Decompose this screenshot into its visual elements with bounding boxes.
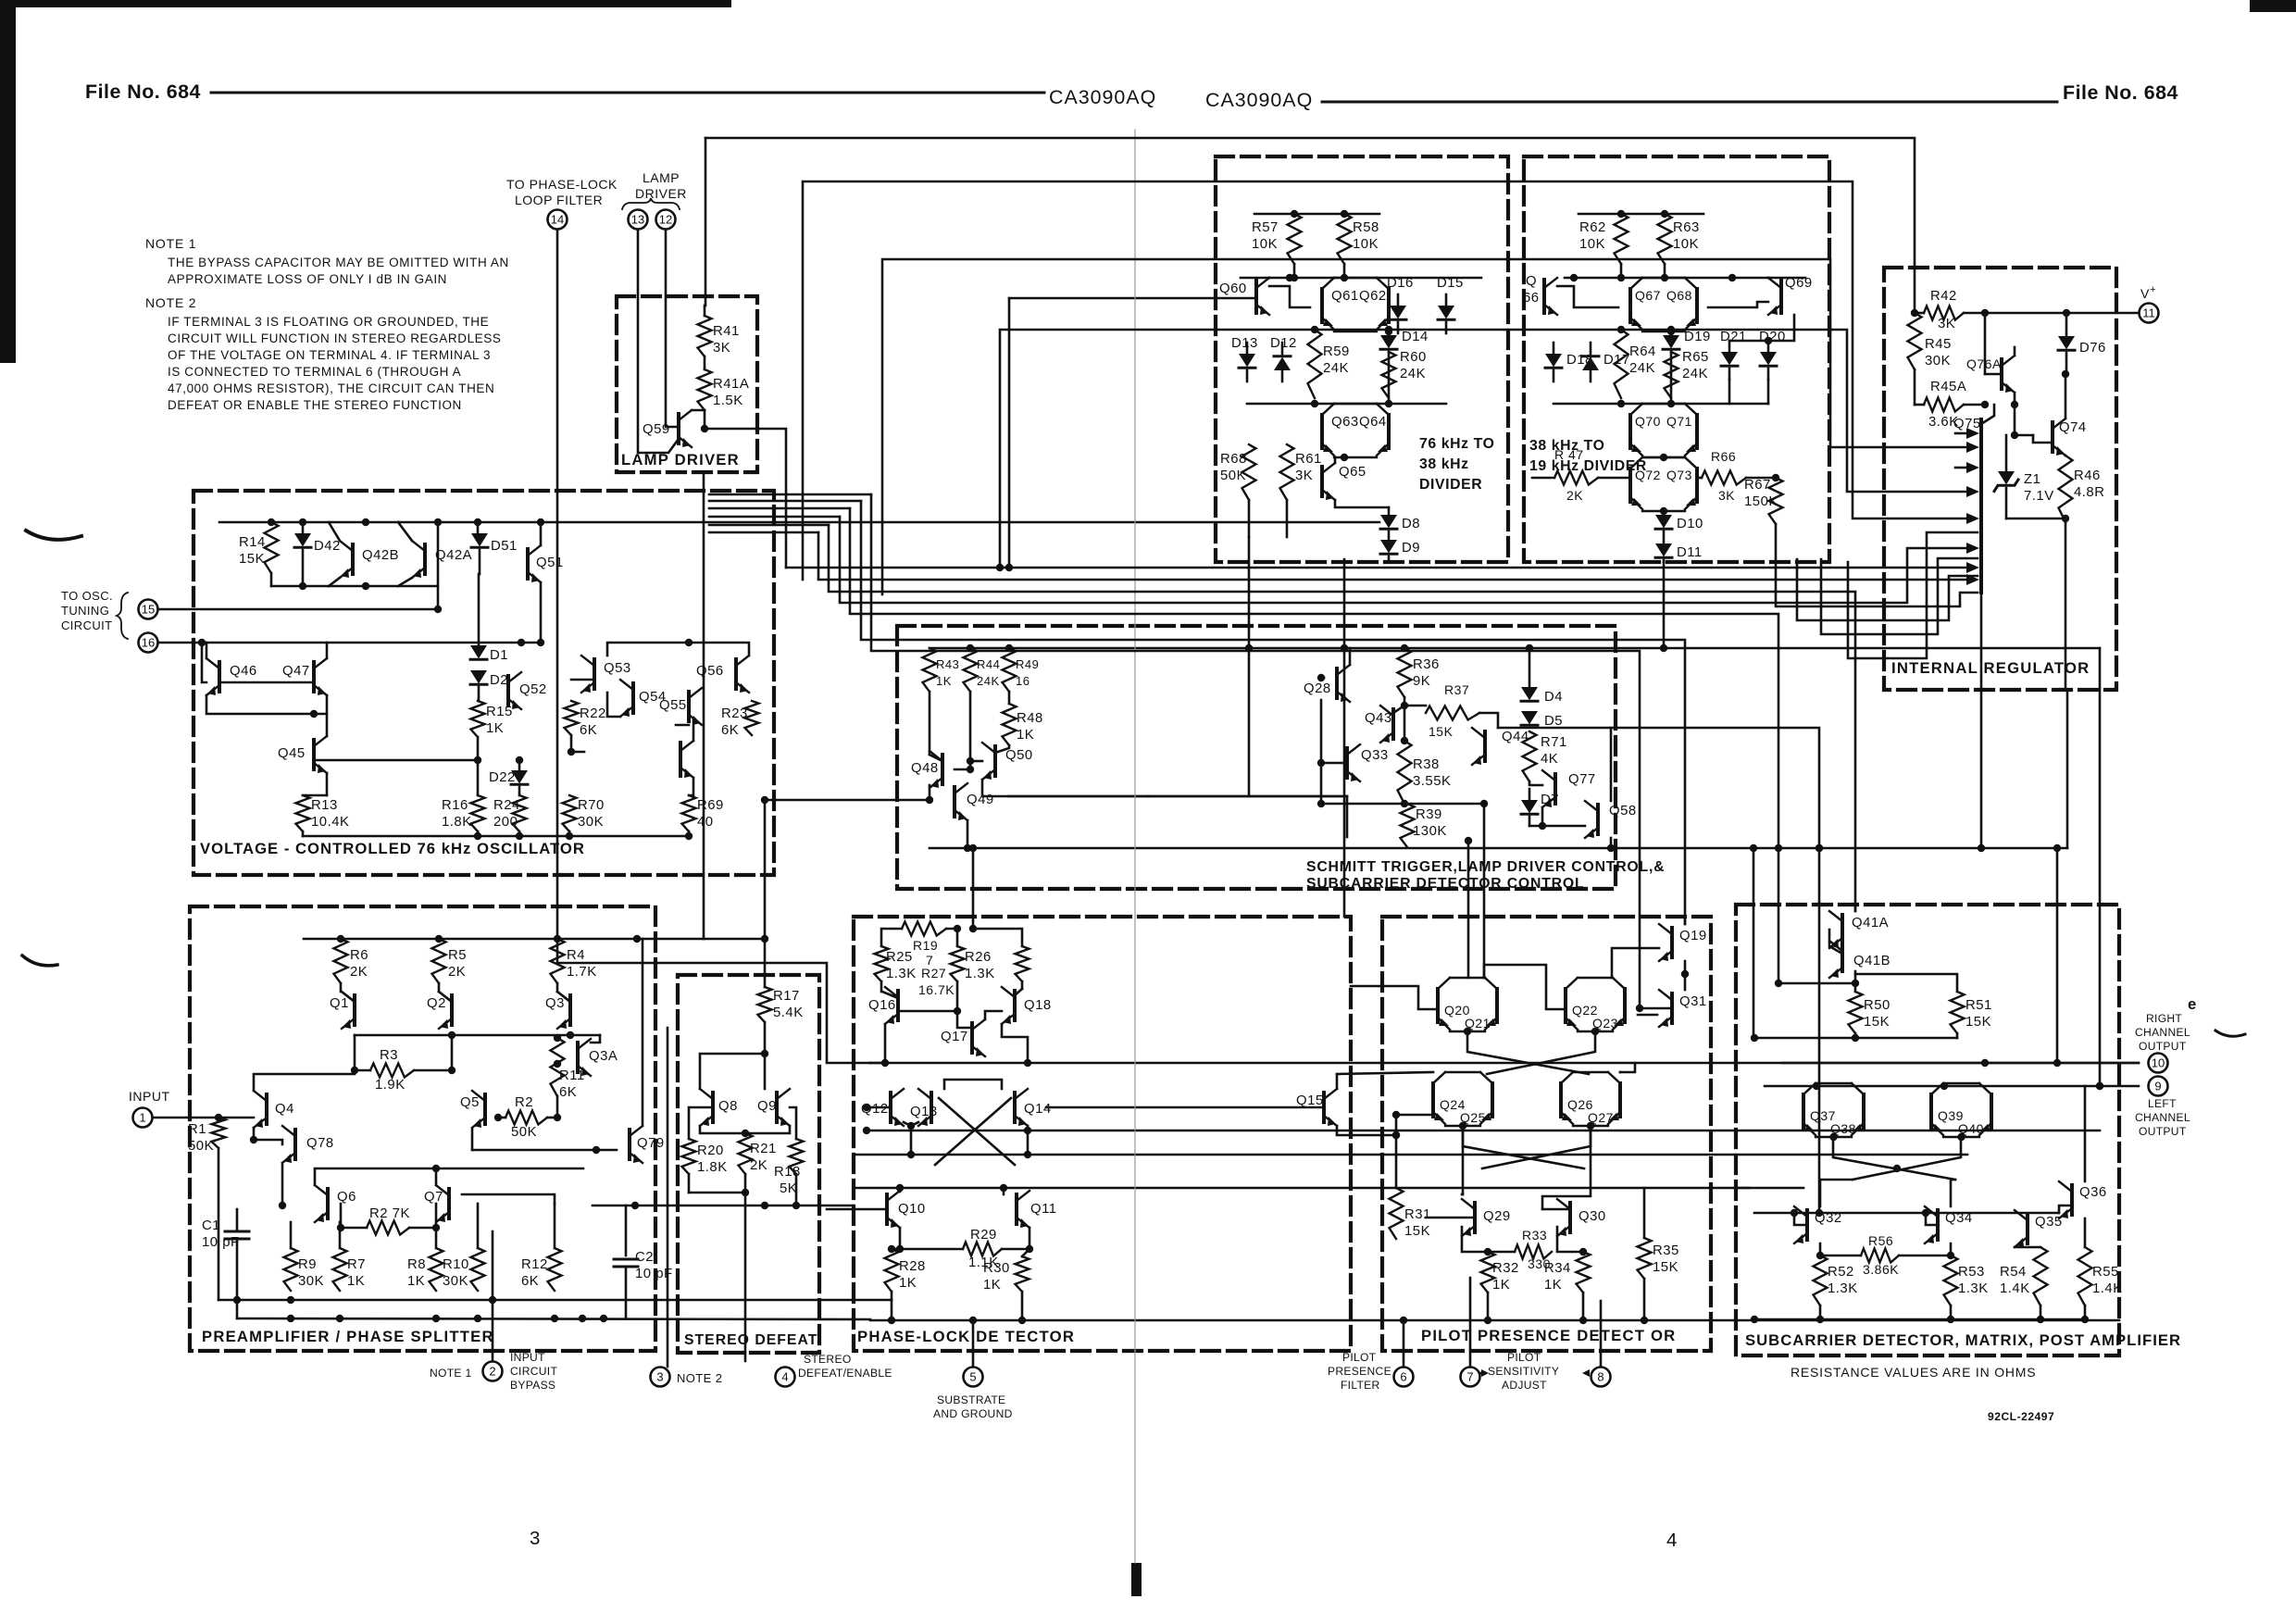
svg-text:Q29: Q29 xyxy=(1483,1209,1511,1224)
svg-text:File No. 684: File No. 684 xyxy=(85,81,201,103)
svg-text:30K: 30K xyxy=(578,815,604,830)
svg-text:DRIVER: DRIVER xyxy=(635,186,687,201)
svg-text:R30: R30 xyxy=(983,1261,1010,1276)
svg-text:4.8R: 4.8R xyxy=(2074,485,2104,500)
svg-text:Q60: Q60 xyxy=(1219,281,1247,296)
svg-text:D20: D20 xyxy=(1759,330,1786,344)
svg-text:R22: R22 xyxy=(580,706,606,721)
svg-text:15: 15 xyxy=(142,603,155,617)
svg-text:OUTPUT: OUTPUT xyxy=(2139,1125,2187,1138)
svg-text:Q69: Q69 xyxy=(1785,276,1813,291)
svg-text:SUBSTRATE: SUBSTRATE xyxy=(937,1393,1005,1406)
svg-text:50K: 50K xyxy=(511,1125,537,1140)
svg-text:D19: D19 xyxy=(1684,330,1711,344)
svg-text:5: 5 xyxy=(969,1370,976,1384)
svg-text:4K: 4K xyxy=(1541,752,1558,767)
svg-text:3.86K: 3.86K xyxy=(1863,1262,1899,1277)
svg-text:R1: R1 xyxy=(188,1122,206,1137)
svg-text:Q68: Q68 xyxy=(1666,288,1692,303)
svg-text:Q61: Q61 xyxy=(1331,289,1359,304)
svg-text:INPUT: INPUT xyxy=(510,1351,545,1364)
svg-text:50K: 50K xyxy=(1220,468,1246,483)
svg-text:R55: R55 xyxy=(2092,1265,2119,1280)
svg-text:VOLTAGE - CONTROLLED 76 kHz: VOLTAGE - CONTROLLED 76 kHz OSCILLATOR xyxy=(200,840,585,857)
svg-text:Q40: Q40 xyxy=(1958,1121,1984,1136)
svg-text:D15: D15 xyxy=(1437,276,1464,291)
svg-text:R41A: R41A xyxy=(713,377,749,392)
svg-text:1K: 1K xyxy=(899,1276,917,1291)
svg-text:R43: R43 xyxy=(936,657,959,671)
svg-text:FILTER: FILTER xyxy=(1341,1379,1380,1392)
svg-text:1.4K: 1.4K xyxy=(2092,1281,2123,1296)
svg-text:ADJUST: ADJUST xyxy=(1502,1379,1547,1392)
svg-text:Q15: Q15 xyxy=(1296,1093,1324,1108)
svg-text:6K: 6K xyxy=(721,723,739,738)
svg-text:Q13: Q13 xyxy=(910,1105,938,1119)
svg-text:OF THE VOLTAGE ON TERMINAL 4.: OF THE VOLTAGE ON TERMINAL 4. IF TERMINA… xyxy=(168,348,491,362)
svg-text:R32: R32 xyxy=(1492,1261,1519,1276)
svg-text:R49: R49 xyxy=(1016,657,1039,671)
svg-text:DIVIDER: DIVIDER xyxy=(1419,477,1482,493)
svg-text:R8: R8 xyxy=(407,1257,426,1272)
svg-text:Q30: Q30 xyxy=(1578,1209,1606,1224)
svg-text:Q77: Q77 xyxy=(1568,772,1596,787)
svg-text:LOOP FILTER: LOOP FILTER xyxy=(515,193,603,207)
svg-text:15K: 15K xyxy=(1965,1015,1991,1030)
svg-text:R10: R10 xyxy=(443,1257,469,1272)
svg-text:R37: R37 xyxy=(1444,682,1469,697)
svg-text:R52: R52 xyxy=(1828,1265,1854,1280)
svg-text:R42: R42 xyxy=(1930,289,1957,304)
svg-text:THE BYPASS CAPACITOR MAY BE OM: THE BYPASS CAPACITOR MAY BE OMITTED WITH… xyxy=(168,256,509,269)
svg-text:2K: 2K xyxy=(448,965,466,980)
svg-text:R11: R11 xyxy=(559,1068,585,1083)
svg-text:R50: R50 xyxy=(1864,998,1890,1013)
svg-text:File No. 684: File No. 684 xyxy=(2063,81,2178,104)
svg-text:R56: R56 xyxy=(1868,1233,1893,1248)
svg-text:D11: D11 xyxy=(1677,545,1703,560)
svg-text:V: V xyxy=(2140,286,2150,301)
svg-text:R65: R65 xyxy=(1682,350,1709,365)
svg-text:D51: D51 xyxy=(491,539,518,554)
svg-text:7.1V: 7.1V xyxy=(2024,489,2054,504)
svg-text:R48: R48 xyxy=(1017,711,1043,726)
svg-text:R7: R7 xyxy=(347,1257,366,1272)
svg-text:D8: D8 xyxy=(1402,517,1420,531)
svg-text:1.4K: 1.4K xyxy=(2000,1281,2030,1296)
svg-text:RIGHT: RIGHT xyxy=(2146,1012,2182,1025)
svg-text:SENSITIVITY: SENSITIVITY xyxy=(1488,1365,1559,1378)
svg-text:R14: R14 xyxy=(239,535,266,550)
svg-text:1.3K: 1.3K xyxy=(1828,1281,1858,1296)
svg-text:Q2: Q2 xyxy=(427,996,446,1011)
svg-text:10K: 10K xyxy=(1579,237,1605,252)
svg-text:R29: R29 xyxy=(970,1228,997,1243)
svg-text:CHANNEL: CHANNEL xyxy=(2135,1026,2190,1039)
svg-text:Q42B: Q42B xyxy=(362,548,399,563)
svg-text:Q42A: Q42A xyxy=(435,548,472,563)
svg-text:APPROXIMATE LOSS OF ONLY I dB: APPROXIMATE LOSS OF ONLY I dB IN GAIN xyxy=(168,272,447,286)
svg-text:NOTE 2: NOTE 2 xyxy=(677,1371,722,1385)
svg-text:Q43: Q43 xyxy=(1365,711,1392,726)
svg-text:Q51: Q51 xyxy=(536,556,564,570)
svg-text:R28: R28 xyxy=(899,1259,926,1274)
svg-text:1K: 1K xyxy=(486,721,504,736)
svg-text:Q: Q xyxy=(1526,274,1537,289)
svg-text:D22: D22 xyxy=(489,770,516,785)
svg-text:Q78: Q78 xyxy=(306,1136,334,1151)
svg-text:D7: D7 xyxy=(1541,793,1559,807)
svg-text:TO OSC.: TO OSC. xyxy=(61,589,113,603)
svg-text:Q46: Q46 xyxy=(230,664,257,679)
svg-text:D76: D76 xyxy=(2079,341,2106,356)
svg-text:6K: 6K xyxy=(580,723,597,738)
svg-text:Q41B: Q41B xyxy=(1853,954,1890,968)
svg-text:D4: D4 xyxy=(1544,690,1563,705)
svg-text:Q14: Q14 xyxy=(1024,1102,1052,1117)
svg-text:Q28: Q28 xyxy=(1304,681,1331,696)
svg-text:1K: 1K xyxy=(1492,1278,1510,1293)
svg-text:Q3: Q3 xyxy=(545,996,565,1011)
svg-text:1K: 1K xyxy=(1544,1278,1562,1293)
svg-text:R41: R41 xyxy=(713,324,740,339)
svg-text:R16: R16 xyxy=(442,798,468,813)
svg-text:Q52: Q52 xyxy=(519,682,547,697)
svg-text:NOTE 1: NOTE 1 xyxy=(145,236,196,251)
svg-text:Q8: Q8 xyxy=(718,1099,738,1114)
svg-text:LAMP: LAMP xyxy=(643,170,680,185)
svg-text:Q4: Q4 xyxy=(275,1102,294,1117)
svg-text:16: 16 xyxy=(142,636,155,650)
svg-text:IF TERMINAL 3 IS FLOATING OR G: IF TERMINAL 3 IS FLOATING OR GROUNDED, T… xyxy=(168,315,489,329)
svg-text:Q71: Q71 xyxy=(1666,414,1692,429)
svg-text:14: 14 xyxy=(551,213,564,227)
svg-text:Q56: Q56 xyxy=(696,664,724,679)
svg-text:15K: 15K xyxy=(1653,1260,1678,1275)
svg-text:10.4K: 10.4K xyxy=(311,815,349,830)
svg-text:10: 10 xyxy=(2152,1056,2165,1070)
svg-text:8: 8 xyxy=(1597,1370,1603,1384)
svg-text:1K: 1K xyxy=(1017,728,1034,743)
svg-text:Q23: Q23 xyxy=(1592,1016,1618,1031)
svg-text:STEREO DEFEAT: STEREO DEFEAT xyxy=(684,1332,817,1348)
svg-text:Q38: Q38 xyxy=(1830,1121,1856,1136)
svg-text:6K: 6K xyxy=(521,1274,539,1289)
svg-text:PREAMPLIFIER / PHASE SPLITTER: PREAMPLIFIER / PHASE SPLITTER xyxy=(202,1328,494,1345)
svg-text:Q19: Q19 xyxy=(1679,929,1707,943)
svg-text:R4: R4 xyxy=(567,948,585,963)
svg-text:Q45: Q45 xyxy=(278,746,306,761)
svg-text:D2: D2 xyxy=(490,673,508,688)
svg-text:OUTPUT: OUTPUT xyxy=(2139,1040,2187,1053)
svg-text:Q44: Q44 xyxy=(1502,730,1529,744)
svg-text:2K: 2K xyxy=(1566,488,1583,503)
svg-text:3K: 3K xyxy=(1295,468,1313,483)
svg-text:Q67: Q67 xyxy=(1635,288,1661,303)
svg-text:30K: 30K xyxy=(1925,354,1951,369)
svg-text:R24: R24 xyxy=(493,798,520,813)
svg-text:6: 6 xyxy=(1400,1370,1406,1384)
svg-text:47,000 OHMS RESISTOR), THE CIR: 47,000 OHMS RESISTOR), THE CIRCUIT CAN T… xyxy=(168,381,494,395)
svg-text:Q62: Q62 xyxy=(1359,289,1387,304)
svg-text:30K: 30K xyxy=(443,1274,468,1289)
svg-text:3K: 3K xyxy=(1938,317,1955,331)
svg-text:Q10: Q10 xyxy=(898,1202,926,1217)
svg-text:3K: 3K xyxy=(713,341,730,356)
svg-text:TUNING: TUNING xyxy=(61,604,109,618)
svg-text:Q50: Q50 xyxy=(1005,748,1033,763)
svg-text:6K: 6K xyxy=(559,1085,577,1100)
svg-text:IS CONNECTED TO TERMINAL 6 (TH: IS CONNECTED TO TERMINAL 6 (THROUGH A xyxy=(168,365,461,379)
svg-text:Q74: Q74 xyxy=(2059,420,2087,435)
svg-text:R58: R58 xyxy=(1353,220,1379,235)
svg-text:CA3090AQ: CA3090AQ xyxy=(1049,86,1156,108)
svg-text:11: 11 xyxy=(2142,306,2155,320)
svg-text:Q5: Q5 xyxy=(460,1095,480,1110)
svg-text:Q53: Q53 xyxy=(604,661,631,676)
svg-text:15K: 15K xyxy=(1864,1015,1890,1030)
svg-text:Q1: Q1 xyxy=(330,996,349,1011)
svg-text:R33: R33 xyxy=(1522,1228,1547,1243)
svg-text:24K: 24K xyxy=(1400,367,1426,381)
svg-text:1.5K: 1.5K xyxy=(713,394,743,408)
svg-text:R2: R2 xyxy=(515,1095,533,1110)
svg-text:Q27: Q27 xyxy=(1588,1110,1614,1125)
svg-text:7: 7 xyxy=(1466,1370,1473,1384)
svg-text:24K: 24K xyxy=(1682,367,1708,381)
svg-text:9: 9 xyxy=(2154,1080,2161,1093)
svg-text:24K: 24K xyxy=(1323,361,1349,376)
svg-text:INTERNAL REGULATOR: INTERNAL REGULATOR xyxy=(1891,659,2090,677)
svg-text:Q59: Q59 xyxy=(643,422,670,437)
svg-text:R62: R62 xyxy=(1579,220,1606,235)
svg-text:R67: R67 xyxy=(1744,478,1771,493)
svg-text:DEFEAT OR ENABLE THE STEREO FU: DEFEAT OR ENABLE THE STEREO FUNCTION xyxy=(168,398,462,412)
svg-text:2: 2 xyxy=(489,1365,495,1379)
svg-text:Q48: Q48 xyxy=(911,761,939,776)
svg-text:10K: 10K xyxy=(1353,237,1379,252)
svg-text:D10: D10 xyxy=(1677,517,1703,531)
svg-text:Q41A: Q41A xyxy=(1852,916,1889,931)
svg-text:R19: R19 xyxy=(913,938,938,953)
svg-text:R26: R26 xyxy=(965,950,992,965)
svg-text:R5: R5 xyxy=(448,948,467,963)
svg-text:R3: R3 xyxy=(380,1048,398,1063)
svg-text:1K: 1K xyxy=(983,1278,1001,1293)
svg-text:10K: 10K xyxy=(1252,237,1278,252)
svg-text:RESISTANCE VALUES ARE IN OHMS: RESISTANCE VALUES ARE IN OHMS xyxy=(1791,1365,2036,1380)
svg-text:Z1: Z1 xyxy=(2024,472,2040,487)
svg-text:R31: R31 xyxy=(1404,1207,1431,1222)
svg-text:R60: R60 xyxy=(1400,350,1427,365)
svg-text:1.9K: 1.9K xyxy=(375,1078,406,1093)
svg-text:R70: R70 xyxy=(578,798,605,813)
svg-text:PRESENCE: PRESENCE xyxy=(1328,1365,1391,1378)
svg-text:LEFT: LEFT xyxy=(2148,1097,2177,1110)
svg-text:PILOT: PILOT xyxy=(1507,1351,1541,1364)
svg-text:D14: D14 xyxy=(1402,330,1429,344)
svg-text:CIRCUIT: CIRCUIT xyxy=(61,618,113,632)
svg-text:4: 4 xyxy=(781,1370,788,1384)
svg-text:R17: R17 xyxy=(773,989,800,1004)
svg-text:R63: R63 xyxy=(1673,220,1700,235)
svg-text:5K: 5K xyxy=(780,1181,797,1196)
svg-text:15K: 15K xyxy=(1404,1224,1430,1239)
svg-text:R20: R20 xyxy=(697,1143,724,1158)
svg-text:Q21: Q21 xyxy=(1465,1016,1491,1031)
svg-text:NOTE 1: NOTE 1 xyxy=(430,1367,471,1380)
svg-text:R61: R61 xyxy=(1295,452,1322,467)
svg-text:CIRCUIT: CIRCUIT xyxy=(510,1365,557,1378)
svg-text:13: 13 xyxy=(631,213,644,227)
svg-text:4: 4 xyxy=(1666,1530,1678,1551)
svg-text:2K: 2K xyxy=(750,1158,767,1173)
svg-text:Q79: Q79 xyxy=(637,1136,665,1151)
svg-text:R35: R35 xyxy=(1653,1243,1679,1258)
svg-text:DEFEAT/ENABLE: DEFEAT/ENABLE xyxy=(798,1367,892,1380)
svg-text:2K: 2K xyxy=(350,965,368,980)
svg-text:R23: R23 xyxy=(721,706,748,721)
svg-text:SCHMITT TRIGGER,LAMP DRIVER: SCHMITT TRIGGER,LAMP DRIVER CONTROL,& xyxy=(1306,859,1665,875)
svg-text:D13: D13 xyxy=(1231,336,1258,351)
svg-text:92CL-22497: 92CL-22497 xyxy=(1988,1410,2054,1423)
svg-text:R68: R68 xyxy=(1220,452,1247,467)
svg-text:1K: 1K xyxy=(936,674,952,688)
svg-text:e: e xyxy=(2188,995,2197,1013)
svg-text:BYPASS: BYPASS xyxy=(510,1379,555,1392)
svg-text:15K: 15K xyxy=(239,552,265,567)
svg-text:66: 66 xyxy=(1523,291,1540,306)
svg-text:38 kHz: 38 kHz xyxy=(1419,456,1469,472)
svg-text:AND GROUND: AND GROUND xyxy=(933,1407,1013,1420)
svg-text:10 pF: 10 pF xyxy=(202,1235,240,1250)
svg-text:16.7K: 16.7K xyxy=(918,982,955,997)
svg-text:Q35: Q35 xyxy=(2035,1215,2063,1230)
svg-text:D5: D5 xyxy=(1544,714,1563,729)
svg-text:R71: R71 xyxy=(1541,735,1567,750)
svg-text:Q9: Q9 xyxy=(757,1099,777,1114)
svg-text:Q64: Q64 xyxy=(1359,415,1387,430)
svg-text:TO PHASE-LOCK: TO PHASE-LOCK xyxy=(506,177,618,192)
svg-text:200: 200 xyxy=(493,815,518,830)
svg-text:9K: 9K xyxy=(1413,674,1430,689)
svg-text:Q65: Q65 xyxy=(1339,465,1366,480)
svg-text:3: 3 xyxy=(530,1528,541,1549)
svg-text:24K: 24K xyxy=(977,674,1000,688)
svg-text:R66: R66 xyxy=(1711,449,1736,464)
svg-text:NOTE 2: NOTE 2 xyxy=(145,295,196,310)
svg-text:1.7K: 1.7K xyxy=(567,965,597,980)
svg-text:R45A: R45A xyxy=(1930,380,1966,394)
svg-text:5.4K: 5.4K xyxy=(773,1006,804,1020)
svg-text:Q49: Q49 xyxy=(967,793,994,807)
svg-text:10K: 10K xyxy=(1673,237,1699,252)
svg-text:R36: R36 xyxy=(1413,657,1440,672)
svg-text:Q25: Q25 xyxy=(1460,1110,1486,1125)
svg-text:R6: R6 xyxy=(350,948,368,963)
svg-text:R46: R46 xyxy=(2074,468,2101,483)
svg-text:1: 1 xyxy=(139,1111,145,1125)
svg-text:D16: D16 xyxy=(1387,276,1414,291)
svg-text:3.55K: 3.55K xyxy=(1413,774,1451,789)
svg-text:Q18: Q18 xyxy=(1024,998,1052,1013)
svg-text:16: 16 xyxy=(1016,674,1029,688)
svg-text:R57: R57 xyxy=(1252,220,1279,235)
svg-text:Q73: Q73 xyxy=(1666,468,1692,482)
svg-text:R45: R45 xyxy=(1925,337,1952,352)
svg-text:Q33: Q33 xyxy=(1361,748,1389,763)
svg-text:Q17: Q17 xyxy=(941,1030,968,1044)
svg-text:R12: R12 xyxy=(521,1257,548,1272)
svg-text:R59: R59 xyxy=(1323,344,1350,359)
svg-text:Q16: Q16 xyxy=(868,998,896,1013)
svg-text:R38: R38 xyxy=(1413,757,1440,772)
svg-text:Q6: Q6 xyxy=(337,1190,356,1205)
svg-text:STEREO: STEREO xyxy=(804,1353,852,1366)
svg-text:CIRCUIT WILL FUNCTION IN STERE: CIRCUIT WILL FUNCTION IN STEREO REGARDLE… xyxy=(168,331,502,345)
svg-text:R25: R25 xyxy=(886,950,913,965)
svg-text:R15: R15 xyxy=(486,705,513,719)
svg-text:Q7: Q7 xyxy=(424,1190,443,1205)
svg-text:150K: 150K xyxy=(1744,494,1778,509)
svg-text:1.8K: 1.8K xyxy=(697,1160,728,1175)
svg-text:130K: 130K xyxy=(1413,824,1447,839)
svg-text:R21: R21 xyxy=(750,1142,777,1156)
svg-text:3K: 3K xyxy=(1718,488,1735,503)
svg-text:R 47: R 47 xyxy=(1554,447,1584,462)
svg-text:R2 7K: R2 7K xyxy=(369,1206,410,1221)
svg-text:30K: 30K xyxy=(298,1274,324,1289)
svg-text:CA3090AQ: CA3090AQ xyxy=(1205,89,1313,111)
svg-text:R39: R39 xyxy=(1416,807,1442,822)
svg-text:40: 40 xyxy=(697,815,714,830)
svg-text:Q63: Q63 xyxy=(1331,415,1359,430)
svg-text:D42: D42 xyxy=(314,539,341,554)
svg-text:12: 12 xyxy=(659,213,672,227)
svg-text:Q31: Q31 xyxy=(1679,994,1707,1009)
svg-text:SUBCARRIER DETECTOR, MATRIX, P: SUBCARRIER DETECTOR, MATRIX, POST AMPLIF… xyxy=(1745,1331,2181,1349)
svg-text:76 kHz TO: 76 kHz TO xyxy=(1419,436,1495,452)
svg-text:Q11: Q11 xyxy=(1030,1202,1057,1217)
svg-text:R53: R53 xyxy=(1958,1265,1985,1280)
svg-text:D9: D9 xyxy=(1402,541,1420,556)
svg-text:3: 3 xyxy=(656,1370,663,1384)
svg-text:1.3K: 1.3K xyxy=(886,967,917,981)
svg-text:Q55: Q55 xyxy=(659,698,687,713)
svg-text:R51: R51 xyxy=(1965,998,1992,1013)
svg-text:24K: 24K xyxy=(1629,361,1655,376)
svg-text:R34: R34 xyxy=(1544,1261,1571,1276)
svg-text:R9: R9 xyxy=(298,1257,317,1272)
svg-text:Q58: Q58 xyxy=(1609,804,1637,818)
svg-text:+: + xyxy=(2150,284,2156,295)
svg-text:Q36: Q36 xyxy=(2079,1185,2107,1200)
svg-text:1.3K: 1.3K xyxy=(965,967,995,981)
svg-text:R69: R69 xyxy=(697,798,724,813)
svg-text:Q72: Q72 xyxy=(1635,468,1661,482)
svg-text:PHASE-LOCK DE TECTOR: PHASE-LOCK DE TECTOR xyxy=(857,1328,1075,1345)
svg-text:R27: R27 xyxy=(921,966,946,981)
svg-text:R54: R54 xyxy=(2000,1265,2027,1280)
svg-text:R44: R44 xyxy=(977,657,1000,671)
svg-text:1.8K: 1.8K xyxy=(442,815,472,830)
svg-text:C2: C2 xyxy=(635,1250,654,1265)
svg-text:INPUT: INPUT xyxy=(129,1089,170,1104)
svg-text:CHANNEL: CHANNEL xyxy=(2135,1111,2190,1124)
svg-text:Q70: Q70 xyxy=(1635,414,1661,429)
svg-text:15K: 15K xyxy=(1429,724,1454,739)
svg-text:Q47: Q47 xyxy=(282,664,310,679)
